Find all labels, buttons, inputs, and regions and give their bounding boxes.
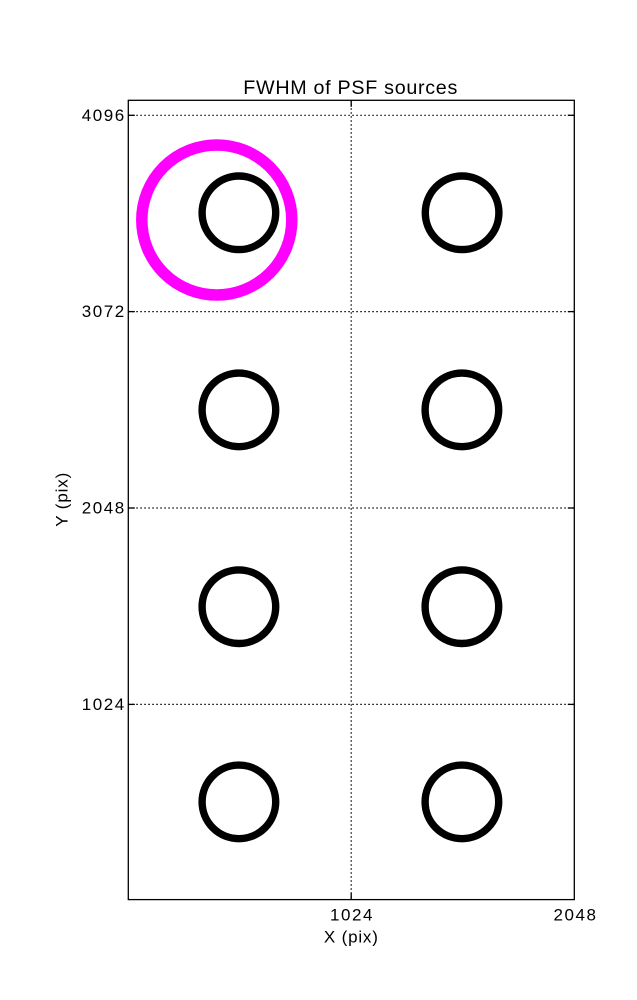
- svg-text:FWHM of PSF sources: FWHM of PSF sources: [243, 77, 457, 99]
- svg-text:3072: 3072: [82, 302, 125, 321]
- svg-text:2048: 2048: [82, 499, 125, 518]
- svg-text:2048: 2048: [553, 906, 596, 925]
- svg-text:4096: 4096: [82, 106, 125, 125]
- svg-text:1024: 1024: [330, 906, 373, 925]
- svg-text:X (pix): X (pix): [324, 927, 378, 946]
- svg-text:Y (pix): Y (pix): [53, 473, 72, 527]
- svg-text:1024: 1024: [82, 695, 125, 714]
